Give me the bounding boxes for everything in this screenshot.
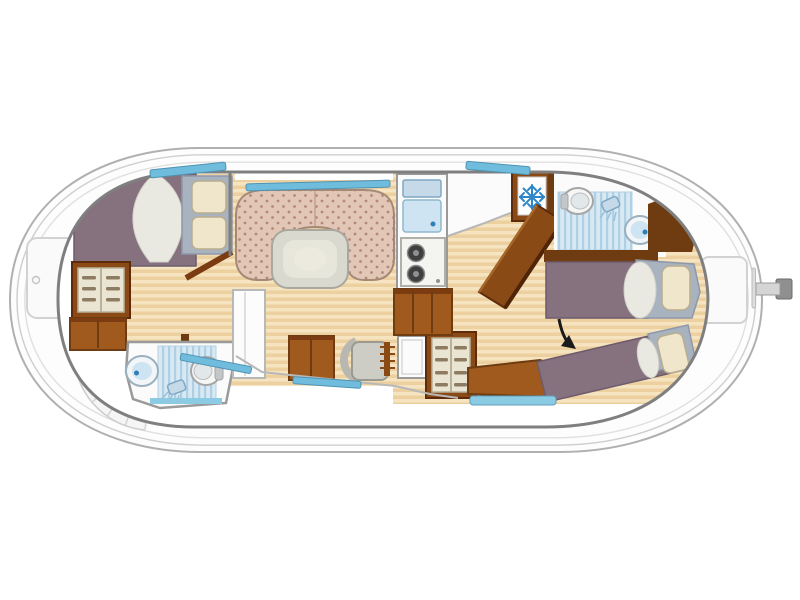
forward-bathroom (126, 342, 235, 408)
shelf-item (435, 383, 448, 387)
berth-duvet (624, 262, 656, 318)
shelf-item (106, 287, 120, 291)
shelf-item (106, 298, 120, 302)
helm-cabinet (289, 336, 334, 380)
burner-hub (413, 271, 419, 277)
shelf-item (435, 358, 448, 362)
forward-bed-pillow-1 (192, 181, 226, 213)
shelf-item (82, 276, 96, 280)
forward-sink (126, 356, 158, 386)
salon-table (272, 230, 348, 288)
sink-drainer (403, 180, 441, 197)
forward-bed-pillow-2 (192, 217, 226, 249)
burner-hub (413, 250, 419, 256)
shelf-item (82, 287, 96, 291)
rudder-shaft (756, 283, 780, 295)
toilet-tank (561, 194, 568, 209)
aft-berth-straight (546, 260, 700, 318)
sink-basin (631, 221, 650, 239)
shelf-item (82, 298, 96, 302)
toilet-seat (571, 193, 589, 209)
shelf-item (106, 276, 120, 280)
shelf-item (454, 383, 467, 387)
stern-deck (701, 257, 756, 323)
floor-plan-canvas (0, 0, 800, 600)
shelf-item (454, 358, 467, 362)
snowflake-icon (520, 185, 544, 209)
forward-wardrobe (72, 262, 130, 318)
stern-vent-slit (752, 268, 756, 308)
table-center (294, 247, 326, 271)
sink-tap (643, 230, 648, 235)
shelf-item (454, 371, 467, 375)
galley-stove (401, 238, 445, 286)
window-lower-aft (470, 396, 556, 405)
boat-floor-plan (0, 0, 800, 600)
shelf-item (435, 371, 448, 375)
galley-sink (403, 180, 441, 232)
stove-knob (436, 279, 440, 283)
berth-pillow (662, 266, 690, 310)
forward-cabinet (70, 318, 126, 350)
galley-cabinets (394, 289, 452, 335)
cabinet-body (394, 289, 452, 335)
cabin-rooms (70, 171, 709, 408)
shelf-item (454, 346, 467, 350)
sink-basin (403, 200, 441, 232)
helm-console (398, 336, 426, 378)
sink-tap (134, 371, 139, 376)
cabinet-top-edge (394, 289, 452, 294)
sink-drain (431, 222, 436, 227)
shelf-item (435, 346, 448, 350)
